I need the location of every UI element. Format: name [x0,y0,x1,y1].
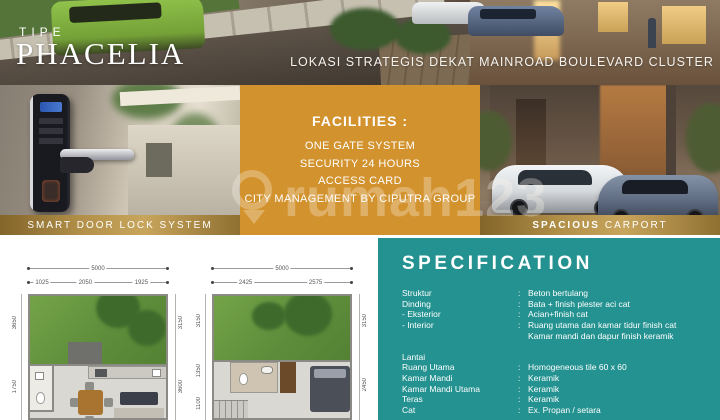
tree-shape [284,294,332,336]
spec-row: Dinding : Bata + finish plester aci cat [402,299,710,310]
spec-colon: : [518,394,528,405]
spec-value: Kamar mandi dan dapur finish keramik [528,331,710,342]
spec-value: Ruang utama dan kamar tidur finish cat [528,320,710,331]
dim-total-line: 5000 [28,268,168,269]
spec-colon: : [518,373,528,384]
dim-label: 1925 [133,279,150,287]
car-window [480,9,536,19]
bathroom [30,366,54,412]
spec-label: Kamar Mandi Utama [402,384,518,395]
dim-label: 3650 [12,314,19,331]
spec-value: Keramik [528,384,710,395]
lock-keypad [39,118,63,148]
spec-row: Lantai [402,352,710,363]
floor-plan-2: 5000 2425 2575 3150 1350 1100 3150 2450 [192,258,370,420]
spec-label: - Interior [402,320,518,331]
path-stone [68,342,102,364]
dim-label: 1025 [33,279,50,287]
sink-shape [261,366,273,374]
dim-label: 2050 [77,279,94,287]
floor-plan-1-drawing [28,294,168,420]
facilities-title: FACILITIES : [240,113,480,129]
spec-value [528,352,710,363]
spec-colon: : [518,405,528,416]
spec-label: - Eksterior [402,309,518,320]
dim-line-left [205,294,206,420]
dim-label: 1750 [12,378,19,395]
spec-row: - Interior : Ruang utama dan kamar tidur… [402,320,710,331]
dim-segment-line: 1025 2050 1925 [28,282,168,283]
car-window [518,170,592,185]
spec-value: Bata + finish plester aci cat [528,299,710,310]
dim-label: 3150 [196,312,203,329]
spec-label: Lantai [402,352,518,363]
dim-label: 3150 [178,314,185,331]
carport-photo: SPACIOUS CARPORT [480,85,720,235]
garden-area [214,296,350,360]
dim-label: 5000 [89,265,106,273]
facilities-box: FACILITIES : ONE GATE SYSTEM SECURITY 24… [240,85,480,235]
spec-row: Cat : Ex. Propan / setara [402,405,710,416]
staircase [214,400,248,420]
car-window [69,2,162,23]
spec-value: Acian+finish cat [528,309,710,320]
dim-line-left [21,294,22,420]
blue-car-shape [468,6,564,36]
wardrobe [280,362,296,393]
dim-line-right [175,294,176,420]
sink-shape [152,369,161,377]
spec-value: Keramik [528,394,710,405]
lit-window [598,2,628,32]
dim-segment-line: 2425 2575 [212,282,352,283]
dim-label: 2425 [237,279,254,287]
spec-label: Teras [402,394,518,405]
shrub-shape [330,8,400,50]
chair-shape [104,398,113,407]
rug-shape [114,408,164,420]
spec-colon: : [518,320,528,331]
dim-label: 2575 [307,279,324,287]
spec-row: Teras : Keramik [402,394,710,405]
toilet-shape [36,392,45,404]
pedestrian-shape [648,18,656,48]
spec-label [402,331,518,342]
spec-label: Cat [402,405,518,416]
spec-row: Kamar Mandi : Keramik [402,373,710,384]
spec-label: Struktur [402,288,518,299]
bathroom [230,362,278,393]
fingerprint-reader [42,180,60,202]
spec-colon: : [518,362,528,373]
tv-console [120,392,158,405]
dim-line-right [359,294,360,420]
floor-plan-1: 5000 1025 2050 1925 3650 1750 3150 3600 [8,258,186,420]
dim-label: 3600 [178,378,185,395]
garden-area [30,296,166,364]
carport-caption-bold: SPACIOUS [532,220,600,231]
bed [310,366,350,412]
house-door-shape [516,99,546,169]
spec-label: Dinding [402,299,518,310]
door-lock-caption-label: SMART DOOR LOCK SYSTEM [27,220,212,231]
spec-colon: : [518,309,528,320]
door-lock-photo: SMART DOOR LOCK SYSTEM [0,85,240,235]
spec-row: Ruang Utama : Homogeneous tile 60 x 60 [402,362,710,373]
spec-value: Beton bertulang [528,288,710,299]
dim-label: 2450 [362,376,369,393]
house-wall-shape [128,125,240,217]
lit-window [662,6,706,44]
spec-value: Homogeneous tile 60 x 60 [528,362,710,373]
toilet-shape [239,373,248,385]
stove-shape [95,369,107,377]
dim-label: 5000 [273,265,290,273]
spec-row: Kamar Mandi Utama : Keramik [402,384,710,395]
chair-shape [85,416,94,420]
tree-shape [686,103,720,173]
page-title: PHACELIA [16,36,185,72]
pillar-shape [666,85,676,185]
spec-row: - Eksterior : Acian+finish cat [402,309,710,320]
carport-caption: SPACIOUS CARPORT [480,215,720,235]
spec-value: Ex. Propan / setara [528,405,710,416]
tree-shape [252,302,286,330]
specification-panel: SPECIFICATION Struktur : Beton bertulang… [378,238,720,420]
car-window [622,180,688,194]
hero-street-photo: TIPE PHACELIA LOKASI STRATEGIS DEKAT MAI… [0,0,720,85]
lock-screen [40,102,62,112]
spec-label: Ruang Utama [402,362,518,373]
spec-colon: : [518,299,528,310]
facility-item: CITY MANAGEMENT BY CIPUTRA GROUP [240,191,480,209]
pillow-shape [314,369,346,378]
spec-colon: : [518,288,528,299]
spec-row: Kamar mandi dan dapur finish keramik [402,331,710,342]
dim-label: 3150 [362,312,369,329]
location-tagline: LOKASI STRATEGIS DEKAT MAINROAD BOULEVAR… [290,55,714,69]
spec-colon: : [518,384,528,395]
spec-label: Kamar Mandi [402,373,518,384]
dim-label: 1350 [196,362,203,379]
dim-total-line: 5000 [212,268,352,269]
house-window-shape [146,143,172,177]
dining-table [78,390,103,415]
facility-item: ACCESS CARD [240,173,480,191]
property-flyer: TIPE PHACELIA LOKASI STRATEGIS DEKAT MAI… [0,0,720,420]
spec-row: Struktur : Beton bertulang [402,288,710,299]
lock-grip [60,157,94,173]
specification-title: SPECIFICATION [402,253,710,275]
spec-value: Keramik [528,373,710,384]
facility-item: SECURITY 24 HOURS [240,156,480,174]
tree-shape [128,310,166,346]
floor-plan-2-drawing [212,294,352,420]
sink-shape [35,372,44,380]
door-lock-caption: SMART DOOR LOCK SYSTEM [0,215,240,235]
kitchen-counter [88,366,168,379]
warm-light-glow [600,85,670,175]
facility-item: ONE GATE SYSTEM [240,138,480,156]
dim-label: 1100 [196,395,203,412]
carport-caption-rest: CARPORT [605,220,668,231]
